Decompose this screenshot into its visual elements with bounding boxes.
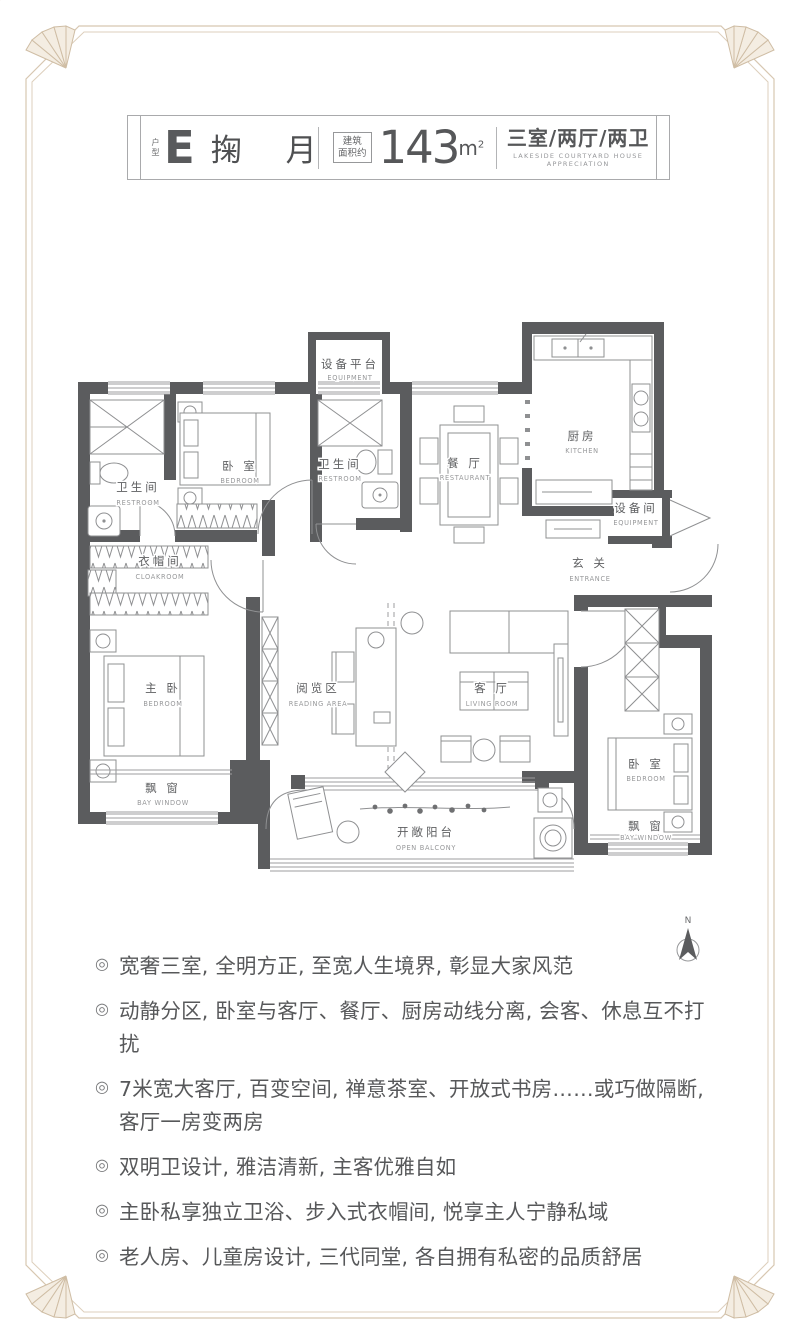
feature-item: ◎ 宽奢三室, 全明方正, 至宽人生境界, 彰显大家风范 xyxy=(95,950,717,983)
wing-wardrobe xyxy=(625,609,659,711)
svg-text:卧 室: 卧 室 xyxy=(628,757,664,771)
svg-text:主 卧: 主 卧 xyxy=(145,681,181,695)
label-cloakroom: 衣帽间CLOAKROOM xyxy=(136,554,185,581)
label-kitchen: 厨房KITCHEN xyxy=(565,429,598,455)
shower-middle xyxy=(318,400,382,446)
bullet-icon: ◎ xyxy=(95,1077,109,1139)
sink-left xyxy=(88,506,120,536)
svg-text:客 厅: 客 厅 xyxy=(474,681,510,695)
bullet-icon: ◎ xyxy=(95,954,109,983)
label-bay-window-left: 飘 窗BAY WINDOW xyxy=(137,781,189,807)
label-entrance: 玄 关ENTRANCE xyxy=(569,556,610,583)
svg-text:阅览区: 阅览区 xyxy=(296,681,340,695)
svg-text:飘 窗: 飘 窗 xyxy=(628,819,664,833)
label-open-balcony: 开敞阳台OPEN BALCONY xyxy=(396,825,456,852)
feature-text: 双明卫设计, 雅洁清新, 主客优雅自如 xyxy=(119,1151,456,1184)
svg-text:BEDROOM: BEDROOM xyxy=(143,700,182,708)
wardrobe-top-bedroom xyxy=(177,504,257,528)
svg-text:RESTAURANT: RESTAURANT xyxy=(440,474,491,482)
reading-bookshelf xyxy=(262,617,278,745)
svg-text:CLOAKROOM: CLOAKROOM xyxy=(136,573,185,581)
svg-text:EQUIPMENT: EQUIPMENT xyxy=(613,519,658,527)
label-bedroom-top: 卧 室BEDROOM xyxy=(220,459,259,485)
svg-text:RESTROOM: RESTROOM xyxy=(318,475,361,483)
svg-text:BEDROOM: BEDROOM xyxy=(626,775,665,783)
svg-text:BEDROOM: BEDROOM xyxy=(220,477,259,485)
bullet-icon: ◎ xyxy=(95,1155,109,1184)
unit-type-label: 户型 xyxy=(150,138,161,158)
svg-text:衣帽间: 衣帽间 xyxy=(138,554,182,568)
svg-text:设备平台: 设备平台 xyxy=(321,357,379,371)
bullet-icon: ◎ xyxy=(95,1200,109,1229)
svg-text:BAY WINDOW: BAY WINDOW xyxy=(137,799,189,807)
area-value: 143 xyxy=(379,125,459,170)
bullet-icon: ◎ xyxy=(95,1245,109,1274)
svg-text:EQUIPMENT: EQUIPMENT xyxy=(327,374,372,382)
svg-text:玄 关: 玄 关 xyxy=(572,556,608,570)
label-master-bedroom: 主 卧BEDROOM xyxy=(143,681,182,708)
bed-top xyxy=(178,402,270,508)
floor-plan: 设备平台EQUIPMENT 厨房KITCHEN 餐 厅RESTAURANT 卫生… xyxy=(60,320,740,890)
unit-name-section: 户型 E 掬 月 xyxy=(128,125,318,170)
shoe-cabinet xyxy=(546,520,600,538)
svg-text:KITCHEN: KITCHEN xyxy=(565,447,598,455)
master-wardrobe xyxy=(90,593,208,615)
feature-item: ◎ 主卧私享独立卫浴、步入式衣帽间, 悦享主人宁静私域 xyxy=(95,1196,717,1229)
layout-summary: 三室/两厅/两卫 xyxy=(497,126,659,150)
reading-desk xyxy=(332,628,396,746)
area-label-line2: 面积约 xyxy=(338,148,367,159)
feature-text: 主卧私享独立卫浴、步入式衣帽间, 悦享主人宁静私域 xyxy=(119,1196,609,1229)
kitchen-counter xyxy=(534,334,652,504)
feature-text: 老人房、儿童房设计, 三代同堂, 各自拥有私密的品质舒居 xyxy=(119,1241,643,1274)
label-equipment-room: 设备间EQUIPMENT xyxy=(613,501,658,527)
feature-text: 动静分区, 卧室与客厅、餐厅、厨房动线分离, 会客、休息互不打扰 xyxy=(119,995,717,1061)
label-equipment-platform: 设备平台EQUIPMENT xyxy=(321,357,379,382)
balcony-railing xyxy=(270,859,574,871)
header-inner-line-left xyxy=(140,116,141,179)
svg-text:开敞阳台: 开敞阳台 xyxy=(397,825,455,839)
svg-text:设备间: 设备间 xyxy=(614,501,658,515)
svg-text:卫生间: 卫生间 xyxy=(318,457,362,471)
label-restroom-middle: 卫生间RESTROOM xyxy=(318,457,362,483)
svg-text:厨房: 厨房 xyxy=(568,429,597,443)
shower-left xyxy=(90,400,164,454)
area-label-box: 建筑 面积约 xyxy=(333,132,372,164)
feature-list: ◎ 宽奢三室, 全明方正, 至宽人生境界, 彰显大家风范 ◎ 动静分区, 卧室与… xyxy=(95,950,717,1286)
svg-text:BAY WINDOW: BAY WINDOW xyxy=(620,834,672,842)
area-label-line1: 建筑 xyxy=(343,136,362,147)
svg-text:OPEN BALCONY: OPEN BALCONY xyxy=(396,844,456,852)
unit-header: 户型 E 掬 月 建筑 面积约 143 m2 三室/两厅/两卫 LAKESIDE… xyxy=(127,115,670,180)
svg-text:餐 厅: 餐 厅 xyxy=(447,456,483,470)
area-unit: m2 xyxy=(458,136,484,160)
svg-text:RESTROOM: RESTROOM xyxy=(116,499,159,507)
feature-item: ◎ 动静分区, 卧室与客厅、餐厅、厨房动线分离, 会客、休息互不打扰 xyxy=(95,995,717,1061)
sink-middle xyxy=(362,482,398,508)
feature-text: 7米宽大客厅, 百变空间, 禅意茶室、开放式书房……或巧做隔断, 客厅一房变两房 xyxy=(119,1073,717,1139)
bullet-icon: ◎ xyxy=(95,999,109,1061)
svg-text:LIVING ROOM: LIVING ROOM xyxy=(466,700,519,708)
laundry xyxy=(534,788,572,858)
area-section: 建筑 面积约 143 m2 xyxy=(319,125,496,170)
feature-item: ◎ 双明卫设计, 雅洁清新, 主客优雅自如 xyxy=(95,1151,717,1184)
label-restroom-left: 卫生间RESTROOM xyxy=(116,480,160,507)
layout-section: 三室/两厅/两卫 LAKESIDE COURTYARD HOUSE APPREC… xyxy=(497,126,669,169)
unit-letter: E xyxy=(164,125,195,170)
feature-text: 宽奢三室, 全明方正, 至宽人生境界, 彰显大家风范 xyxy=(119,950,573,983)
wing-bed xyxy=(608,714,692,832)
layout-subtitle-en: LAKESIDE COURTYARD HOUSE APPRECIATION xyxy=(497,153,659,169)
svg-text:卫生间: 卫生间 xyxy=(116,480,160,494)
tv-cabinet xyxy=(554,644,568,736)
svg-text:READING AREA: READING AREA xyxy=(289,700,348,708)
svg-text:卧 室: 卧 室 xyxy=(222,459,258,473)
feature-item: ◎ 7米宽大客厅, 百变空间, 禅意茶室、开放式书房……或巧做隔断, 客厅一房变… xyxy=(95,1073,717,1139)
svg-text:ENTRANCE: ENTRANCE xyxy=(569,575,610,583)
header-inner-line-right xyxy=(656,116,657,179)
svg-text:飘 窗: 飘 窗 xyxy=(145,781,181,795)
label-bedroom-right: 卧 室BEDROOM xyxy=(626,757,665,783)
label-reading-area: 阅览区READING AREA xyxy=(289,681,348,708)
compass-north-label: N xyxy=(670,916,706,926)
unit-name: 掬 月 xyxy=(211,125,334,170)
feature-item: ◎ 老人房、儿童房设计, 三代同堂, 各自拥有私密的品质舒居 xyxy=(95,1241,717,1274)
